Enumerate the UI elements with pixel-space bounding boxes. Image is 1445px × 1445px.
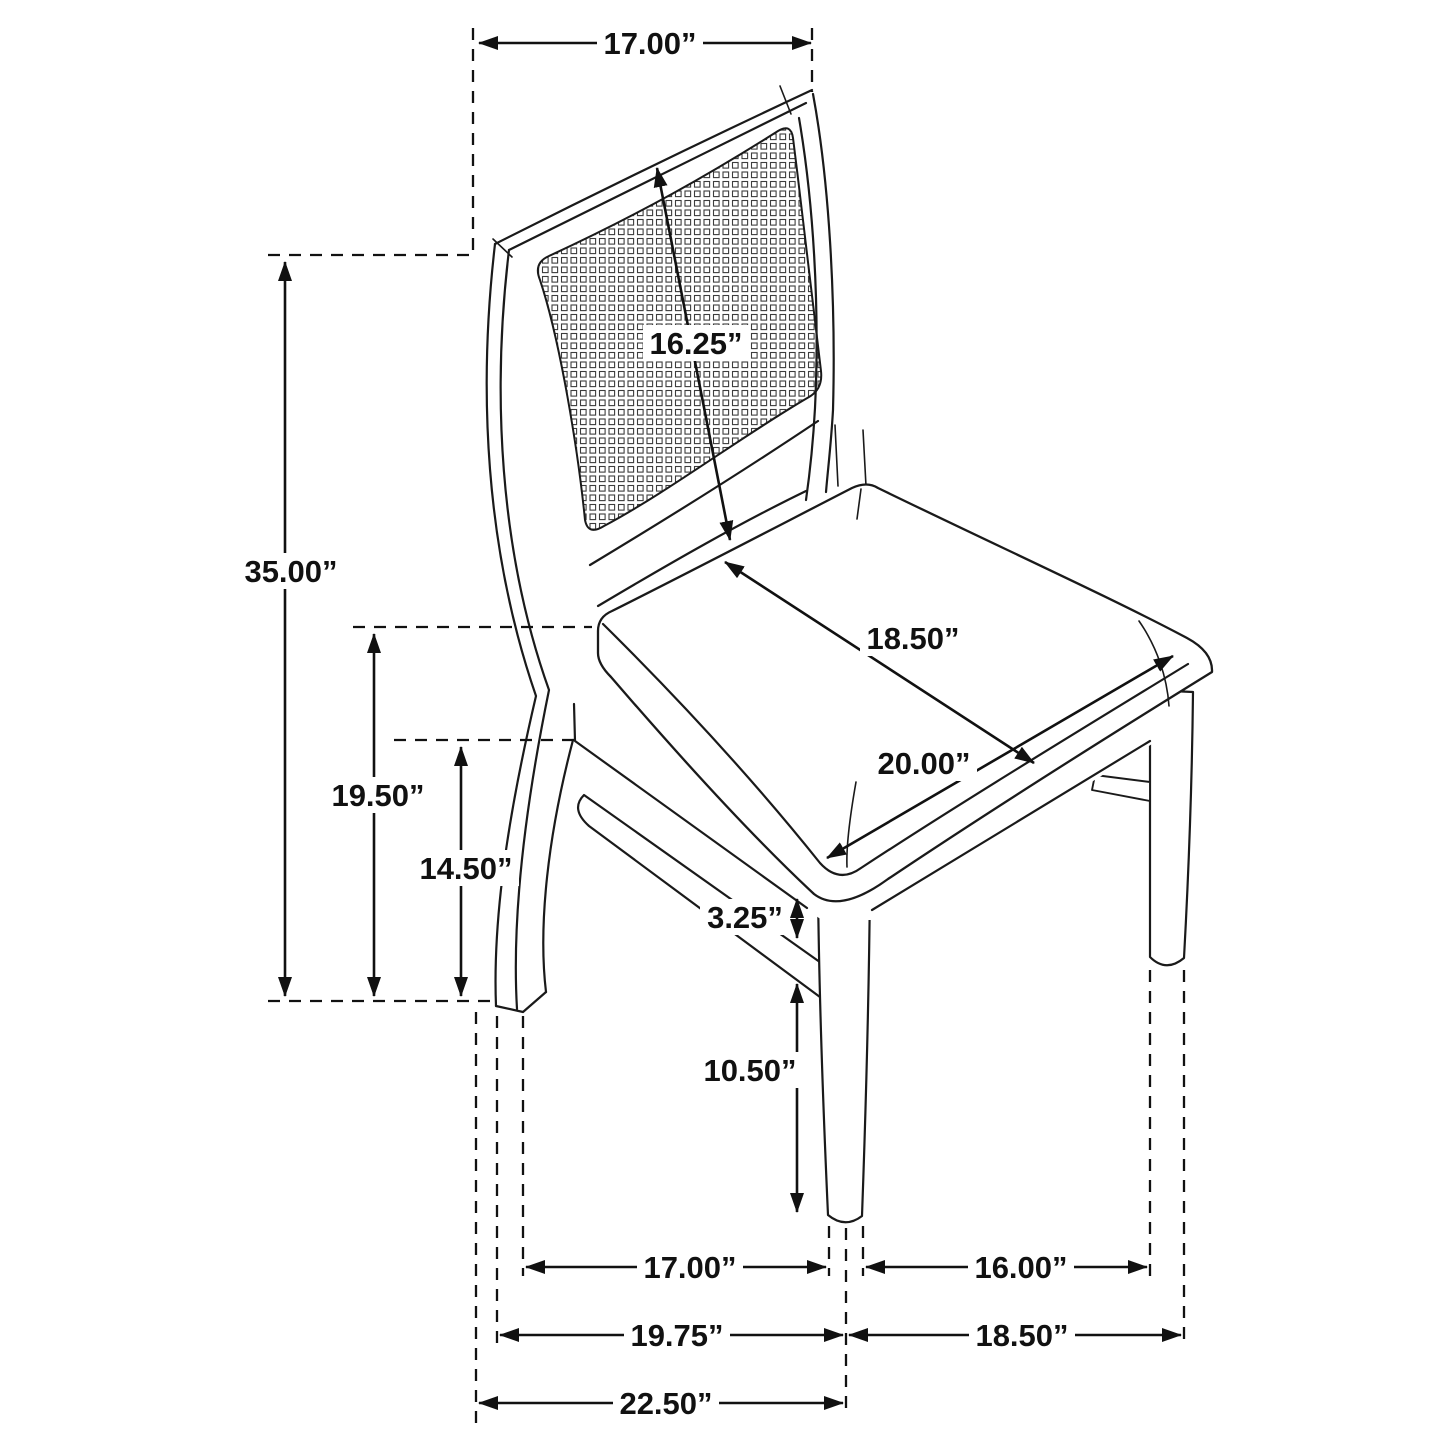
right-stretcher xyxy=(1092,775,1150,801)
dim-label-overall-height: 35.00” xyxy=(244,554,337,589)
rear-left-foot xyxy=(496,992,546,1012)
dimension-seat-width: 20.00” xyxy=(871,745,977,781)
dimension-feet-right-span: 16.00” xyxy=(968,1249,1074,1285)
rear-left-leg-inner xyxy=(543,740,573,992)
dim-label-seat-height: 19.50” xyxy=(331,778,424,813)
dimension-seat-depth: 18.50” xyxy=(860,620,966,656)
dimension-stretcher-gap: 3.25” xyxy=(700,899,790,935)
dim-label-base-depth-left: 19.75” xyxy=(630,1318,723,1353)
dim-label-back-panel-height: 16.25” xyxy=(649,326,742,361)
dim-label-seat-width: 20.00” xyxy=(877,746,970,781)
dim-label-overall-depth: 22.50” xyxy=(619,1386,712,1421)
dim-label-front-leg-clearance: 10.50” xyxy=(703,1053,796,1088)
backrest-left-stile-mid xyxy=(501,250,549,1009)
dim-label-feet-right-span: 16.00” xyxy=(974,1250,1067,1285)
dimension-front-leg-clearance: 10.50” xyxy=(697,1052,803,1088)
dimension-base-width-right: 18.50” xyxy=(969,1317,1075,1353)
dimension-base-depth-left: 19.75” xyxy=(624,1317,730,1353)
dim-label-top-back-width: 17.00” xyxy=(603,26,696,61)
chair-drawing xyxy=(487,86,1212,1222)
rail-corner-seam-left xyxy=(493,239,512,257)
dimension-feet-inner-span: 17.00” xyxy=(637,1249,743,1285)
dim-label-feet-inner-span: 17.00” xyxy=(643,1250,736,1285)
front-right-leg xyxy=(1150,690,1193,965)
dim-label-seat-depth: 18.50” xyxy=(866,621,959,656)
dim-label-base-width-right: 18.50” xyxy=(975,1318,1068,1353)
dimension-overall-depth: 22.50” xyxy=(613,1385,719,1421)
chair-dimension-diagram: 17.00” 35.00” 16.25” 18.50” 20.00” 19.50… xyxy=(0,0,1445,1445)
dim-label-stretcher-gap: 3.25” xyxy=(707,900,783,935)
dimension-top-back-width: 17.00” xyxy=(597,25,703,61)
dimension-back-panel-height: 16.25” xyxy=(643,325,749,361)
rear-right-post xyxy=(835,425,866,486)
dimension-seat-height: 19.50” xyxy=(325,777,431,813)
dimension-apron-floor-height: 14.50” xyxy=(413,850,519,886)
front-left-leg xyxy=(818,884,870,1222)
dim-label-apron-floor-height: 14.50” xyxy=(419,851,512,886)
dimension-overall-height: 35.00” xyxy=(238,553,344,589)
chair-seat-cushion xyxy=(598,485,1212,902)
diagram-canvas: 17.00” 35.00” 16.25” 18.50” 20.00” 19.50… xyxy=(0,0,1445,1445)
